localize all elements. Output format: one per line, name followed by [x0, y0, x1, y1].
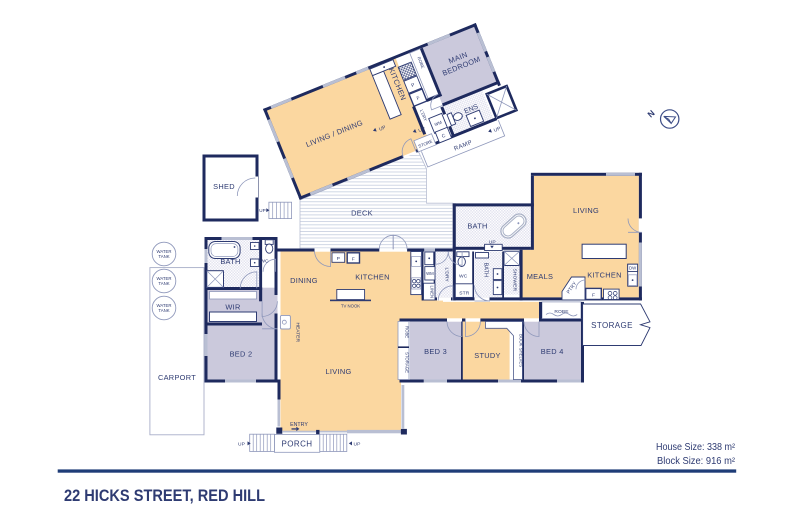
svg-text:BATH: BATH — [467, 221, 487, 230]
svg-text:ROBE: ROBE — [554, 309, 569, 315]
svg-text:HEATER: HEATER — [295, 323, 301, 343]
svg-text:UP: UP — [354, 442, 361, 448]
svg-text:F: F — [352, 256, 355, 262]
svg-text:UP: UP — [238, 442, 245, 448]
svg-text:22 HICKS STREET, RED HILL: 22 HICKS STREET, RED HILL — [64, 486, 265, 505]
svg-text:BED 4: BED 4 — [541, 347, 564, 356]
svg-text:WC: WC — [459, 274, 468, 280]
svg-text:LINEN: LINEN — [430, 286, 435, 299]
svg-text:ROBE: ROBE — [405, 326, 410, 338]
svg-text:UP: UP — [259, 208, 265, 213]
svg-text:DECK: DECK — [351, 208, 373, 217]
svg-text:BOOK SHELVES: BOOK SHELVES — [519, 334, 524, 367]
svg-text:LIVING: LIVING — [325, 367, 351, 376]
svg-text:STUDY: STUDY — [474, 351, 501, 360]
svg-text:PORCH: PORCH — [282, 439, 313, 448]
svg-text:WIR: WIR — [225, 303, 240, 312]
svg-text:SHOWER: SHOWER — [512, 269, 518, 292]
svg-text:House Size: 338 m²: House Size: 338 m² — [656, 442, 736, 453]
svg-text:Block Size: 916 m²: Block Size: 916 m² — [657, 456, 736, 467]
svg-text:P: P — [337, 256, 340, 262]
svg-text:CARPORT: CARPORT — [158, 373, 196, 382]
svg-text:BED 2: BED 2 — [230, 350, 253, 359]
svg-text:KITCHEN: KITCHEN — [587, 271, 622, 280]
svg-text:UP: UP — [489, 239, 496, 245]
svg-text:TV NOOK: TV NOOK — [341, 303, 360, 308]
svg-text:STORAGE: STORAGE — [405, 352, 410, 373]
svg-text:ENTRY: ENTRY — [290, 422, 308, 428]
svg-text:KITCHEN: KITCHEN — [355, 272, 390, 281]
svg-text:LIVING: LIVING — [573, 206, 599, 215]
svg-text:BATH: BATH — [483, 263, 489, 278]
svg-text:STR: STR — [459, 291, 469, 297]
svg-text:BATH: BATH — [220, 257, 240, 266]
svg-text:DW: DW — [629, 266, 637, 271]
svg-text:L'DRY: L'DRY — [444, 268, 450, 283]
svg-text:MEALS: MEALS — [527, 272, 554, 281]
svg-text:BED 3: BED 3 — [424, 347, 447, 356]
svg-text:WM: WM — [426, 271, 434, 276]
svg-text:TANK: TANK — [158, 254, 169, 259]
svg-text:TANK: TANK — [158, 281, 169, 286]
svg-text:DINING: DINING — [290, 276, 318, 285]
svg-text:F: F — [592, 292, 595, 298]
svg-text:WC: WC — [260, 258, 269, 264]
svg-text:SHED: SHED — [213, 182, 235, 191]
svg-text:STORAGE: STORAGE — [591, 321, 633, 330]
svg-text:TANK: TANK — [158, 308, 169, 313]
